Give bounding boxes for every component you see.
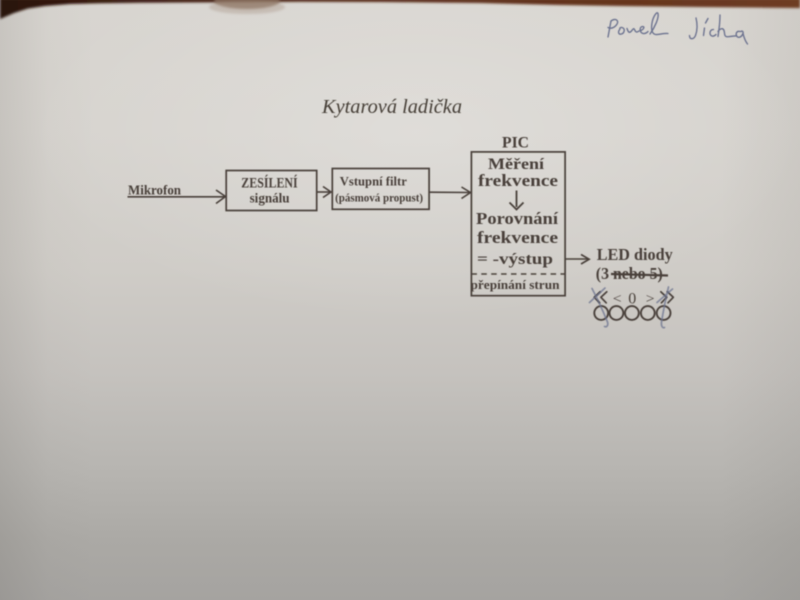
- svg-text:frekvence: frekvence: [478, 171, 559, 190]
- svg-text:Kytarová ladička: Kytarová ladička: [321, 96, 462, 118]
- svg-text:PIC: PIC: [502, 135, 529, 152]
- svg-text:frekvence: frekvence: [477, 228, 559, 247]
- svg-text:ZESÍLENÍ: ZESÍLENÍ: [241, 175, 298, 192]
- svg-text:>: >: [646, 292, 655, 307]
- svg-text:Vstupní filtr: Vstupní filtr: [340, 174, 407, 189]
- svg-text:<: <: [613, 292, 622, 307]
- svg-text:přepínání strun: přepínání strun: [471, 277, 561, 292]
- svg-text:0: 0: [628, 291, 636, 308]
- svg-text:= -výstup: = -výstup: [477, 251, 553, 268]
- svg-text:(pásmová propust): (pásmová propust): [335, 193, 423, 205]
- svg-text:LED diody: LED diody: [597, 245, 674, 264]
- svg-text:Porovnání: Porovnání: [476, 209, 558, 228]
- svg-text:signálu: signálu: [250, 191, 290, 206]
